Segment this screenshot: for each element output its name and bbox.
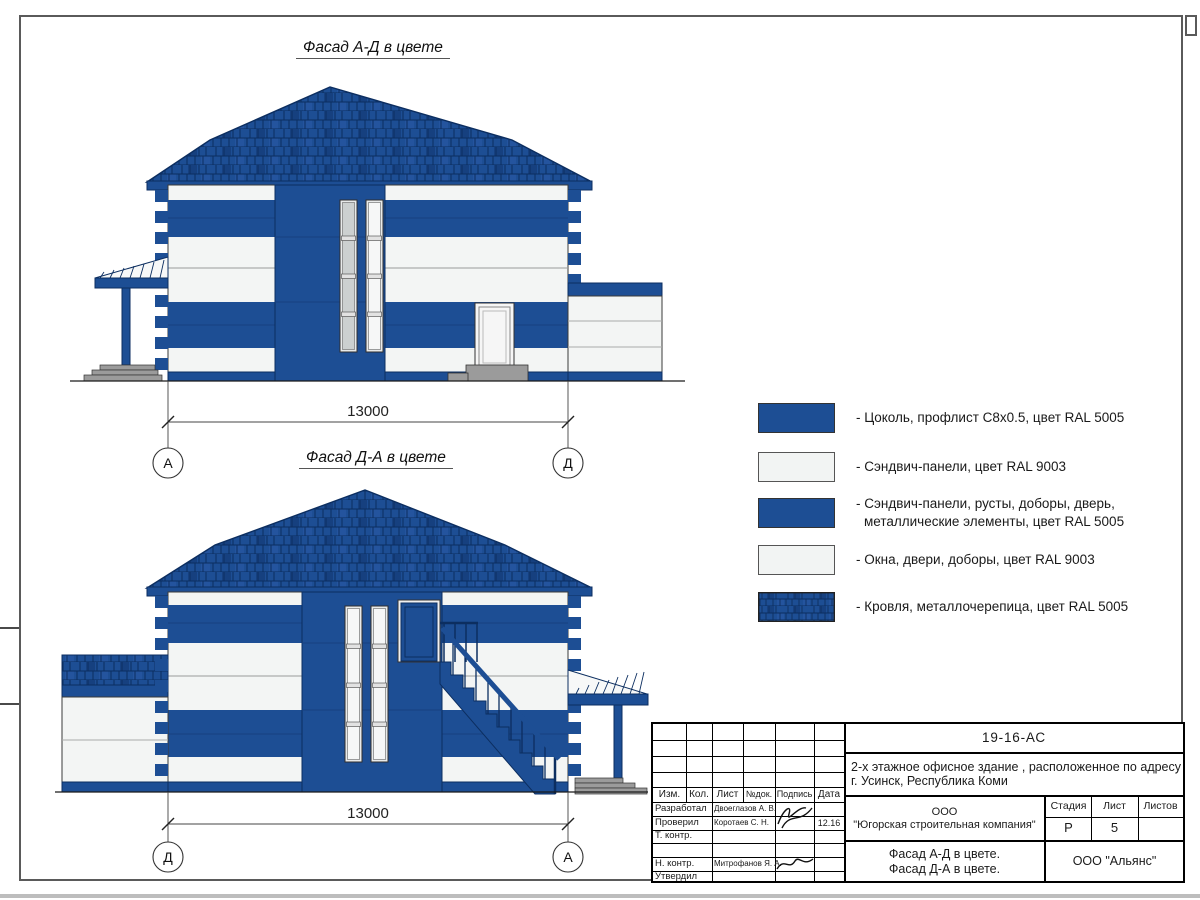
tb-name: Коротаев С. Н.	[714, 816, 775, 830]
tb-drawing-line2: Фасад Д-А в цвете.	[889, 862, 1000, 876]
porch-steps	[84, 365, 162, 381]
tb-header-podpis: Подпись	[775, 787, 814, 802]
legend-label: - Кровля, металлочерепица, цвет RAL 5005	[856, 598, 1186, 616]
tb-grid-line	[653, 843, 845, 844]
tb-company-line1: ООО	[853, 806, 1035, 819]
tb-role: Утвердил	[655, 871, 712, 883]
axis-label-right: А	[563, 849, 573, 865]
legend-label: - Окна, двери, доборы, цвет RAL 9003	[856, 551, 1186, 569]
tb-company: ООО "Югорская строительная компания"	[845, 797, 1044, 840]
legend-label: - Сэндвич-панели, цвет RAL 9003	[856, 458, 1186, 476]
signature	[774, 855, 816, 872]
legend-label: - Сэндвич-панели, русты, доборы, дверь, …	[856, 495, 1186, 531]
frame-margin-tick	[0, 703, 19, 705]
central-pilaster	[275, 185, 385, 381]
tb-company-line2: "Югорская строительная компания"	[853, 819, 1035, 832]
tb-contractor: ООО "Альянс"	[1046, 842, 1183, 881]
dimension-value: 13000	[347, 403, 389, 420]
axis-label-right: Д	[563, 455, 573, 471]
tb-object-line2: г. Усинск, Республика Коми	[851, 774, 1181, 788]
central-pilaster	[302, 592, 442, 792]
facade-da-drawing: 13000 Д А	[40, 482, 700, 900]
tb-name: Митрофанов Я. А.	[714, 857, 775, 871]
tb-sheets-value	[1138, 817, 1183, 840]
legend-item: - Цоколь, профлист С8х0.5, цвет RAL 5005	[758, 403, 1186, 433]
legend-item: - Окна, двери, доборы, цвет RAL 9003	[758, 545, 1186, 575]
tb-role: Н. контр.	[655, 857, 712, 871]
legend-swatch-roof	[758, 592, 835, 622]
facade-ad-title-text: Фасад А-Д в цвете	[296, 39, 450, 59]
right-annex	[568, 283, 662, 381]
tb-header-izm: Изм.	[653, 787, 686, 802]
tb-grid-line	[653, 740, 845, 741]
legend-label-line2: металлические элементы, цвет RAL 5005	[856, 513, 1186, 531]
dimension-value: 13000	[347, 805, 389, 822]
roof	[147, 87, 592, 190]
tb-header-data: Дата	[814, 787, 844, 802]
tb-role: Проверил	[655, 816, 712, 830]
tb-object-line1: 2-х этажное офисное здание , расположенн…	[851, 760, 1181, 774]
facade-da-title-text: Фасад Д-А в цвете	[299, 449, 453, 469]
tb-grid-line	[653, 772, 845, 773]
tb-role: Т. контр.	[655, 830, 712, 843]
tb-grid-line	[653, 756, 845, 757]
tb-sheet-label: Лист	[1091, 795, 1138, 817]
legend-swatch-blue	[758, 403, 835, 433]
drawing-sheet: Фасад А-Д в цвете	[0, 0, 1200, 900]
door-steps	[466, 365, 528, 381]
window	[371, 606, 388, 762]
facade-da-title: Фасад Д-А в цвете	[299, 449, 453, 467]
tb-name: Двоеглазов А. В.	[714, 802, 775, 816]
legend-label: - Цоколь, профлист С8х0.5, цвет RAL 5005	[856, 409, 1186, 427]
facade-ad-drawing: 13000 А Д	[40, 75, 700, 480]
tb-role: Разработал	[655, 802, 712, 816]
axis-marks: Д А	[153, 842, 583, 872]
legend-item: - Сэндвич-панели, русты, доборы, дверь, …	[758, 495, 1186, 531]
tb-header-kol: Кол.	[686, 787, 712, 802]
tb-drawing-line1: Фасад А-Д в цвете.	[889, 847, 1000, 861]
roof	[147, 490, 592, 596]
legend-item: - Кровля, металлочерепица, цвет RAL 5005	[758, 592, 1186, 622]
tb-stage-label: Стадия	[1046, 795, 1091, 817]
tb-date: 12.16	[814, 816, 844, 830]
window	[345, 606, 362, 762]
tb-sheet-value: 5	[1091, 817, 1138, 840]
tb-drawing-name: Фасад А-Д в цвете. Фасад Д-А в цвете.	[845, 842, 1044, 881]
tb-header-list: Лист	[712, 787, 743, 802]
upper-door	[398, 600, 440, 662]
legend-swatch-blue	[758, 498, 835, 528]
tb-sheets-label: Листов	[1138, 795, 1183, 817]
legend-swatch-white	[758, 545, 835, 575]
window	[340, 200, 357, 352]
legend-swatch-white	[758, 452, 835, 482]
tb-header-ndok: №док.	[743, 787, 775, 802]
signature	[774, 802, 816, 832]
tb-doc-number: 19-16-АС	[845, 724, 1183, 752]
porch-column	[122, 288, 130, 365]
window	[366, 200, 383, 352]
title-block: Изм. Кол. Лист №док. Подпись Дата Разраб…	[651, 722, 1185, 883]
facade-ad-title: Фасад А-Д в цвете	[296, 39, 450, 57]
tb-stage-value: Р	[1046, 817, 1091, 840]
left-annex	[62, 655, 168, 792]
axis-label-left: А	[163, 455, 173, 471]
frame-margin-tick	[0, 627, 19, 629]
legend-item: - Сэндвич-панели, цвет RAL 9003	[758, 452, 1186, 482]
canopy-column	[614, 705, 622, 778]
axis-label-left: Д	[163, 849, 173, 865]
tb-object: 2-х этажное офисное здание , расположенн…	[851, 754, 1181, 794]
legend-label-line1: - Сэндвич-панели, русты, доборы, дверь,	[856, 495, 1186, 513]
frame-corner-box	[1185, 15, 1197, 36]
